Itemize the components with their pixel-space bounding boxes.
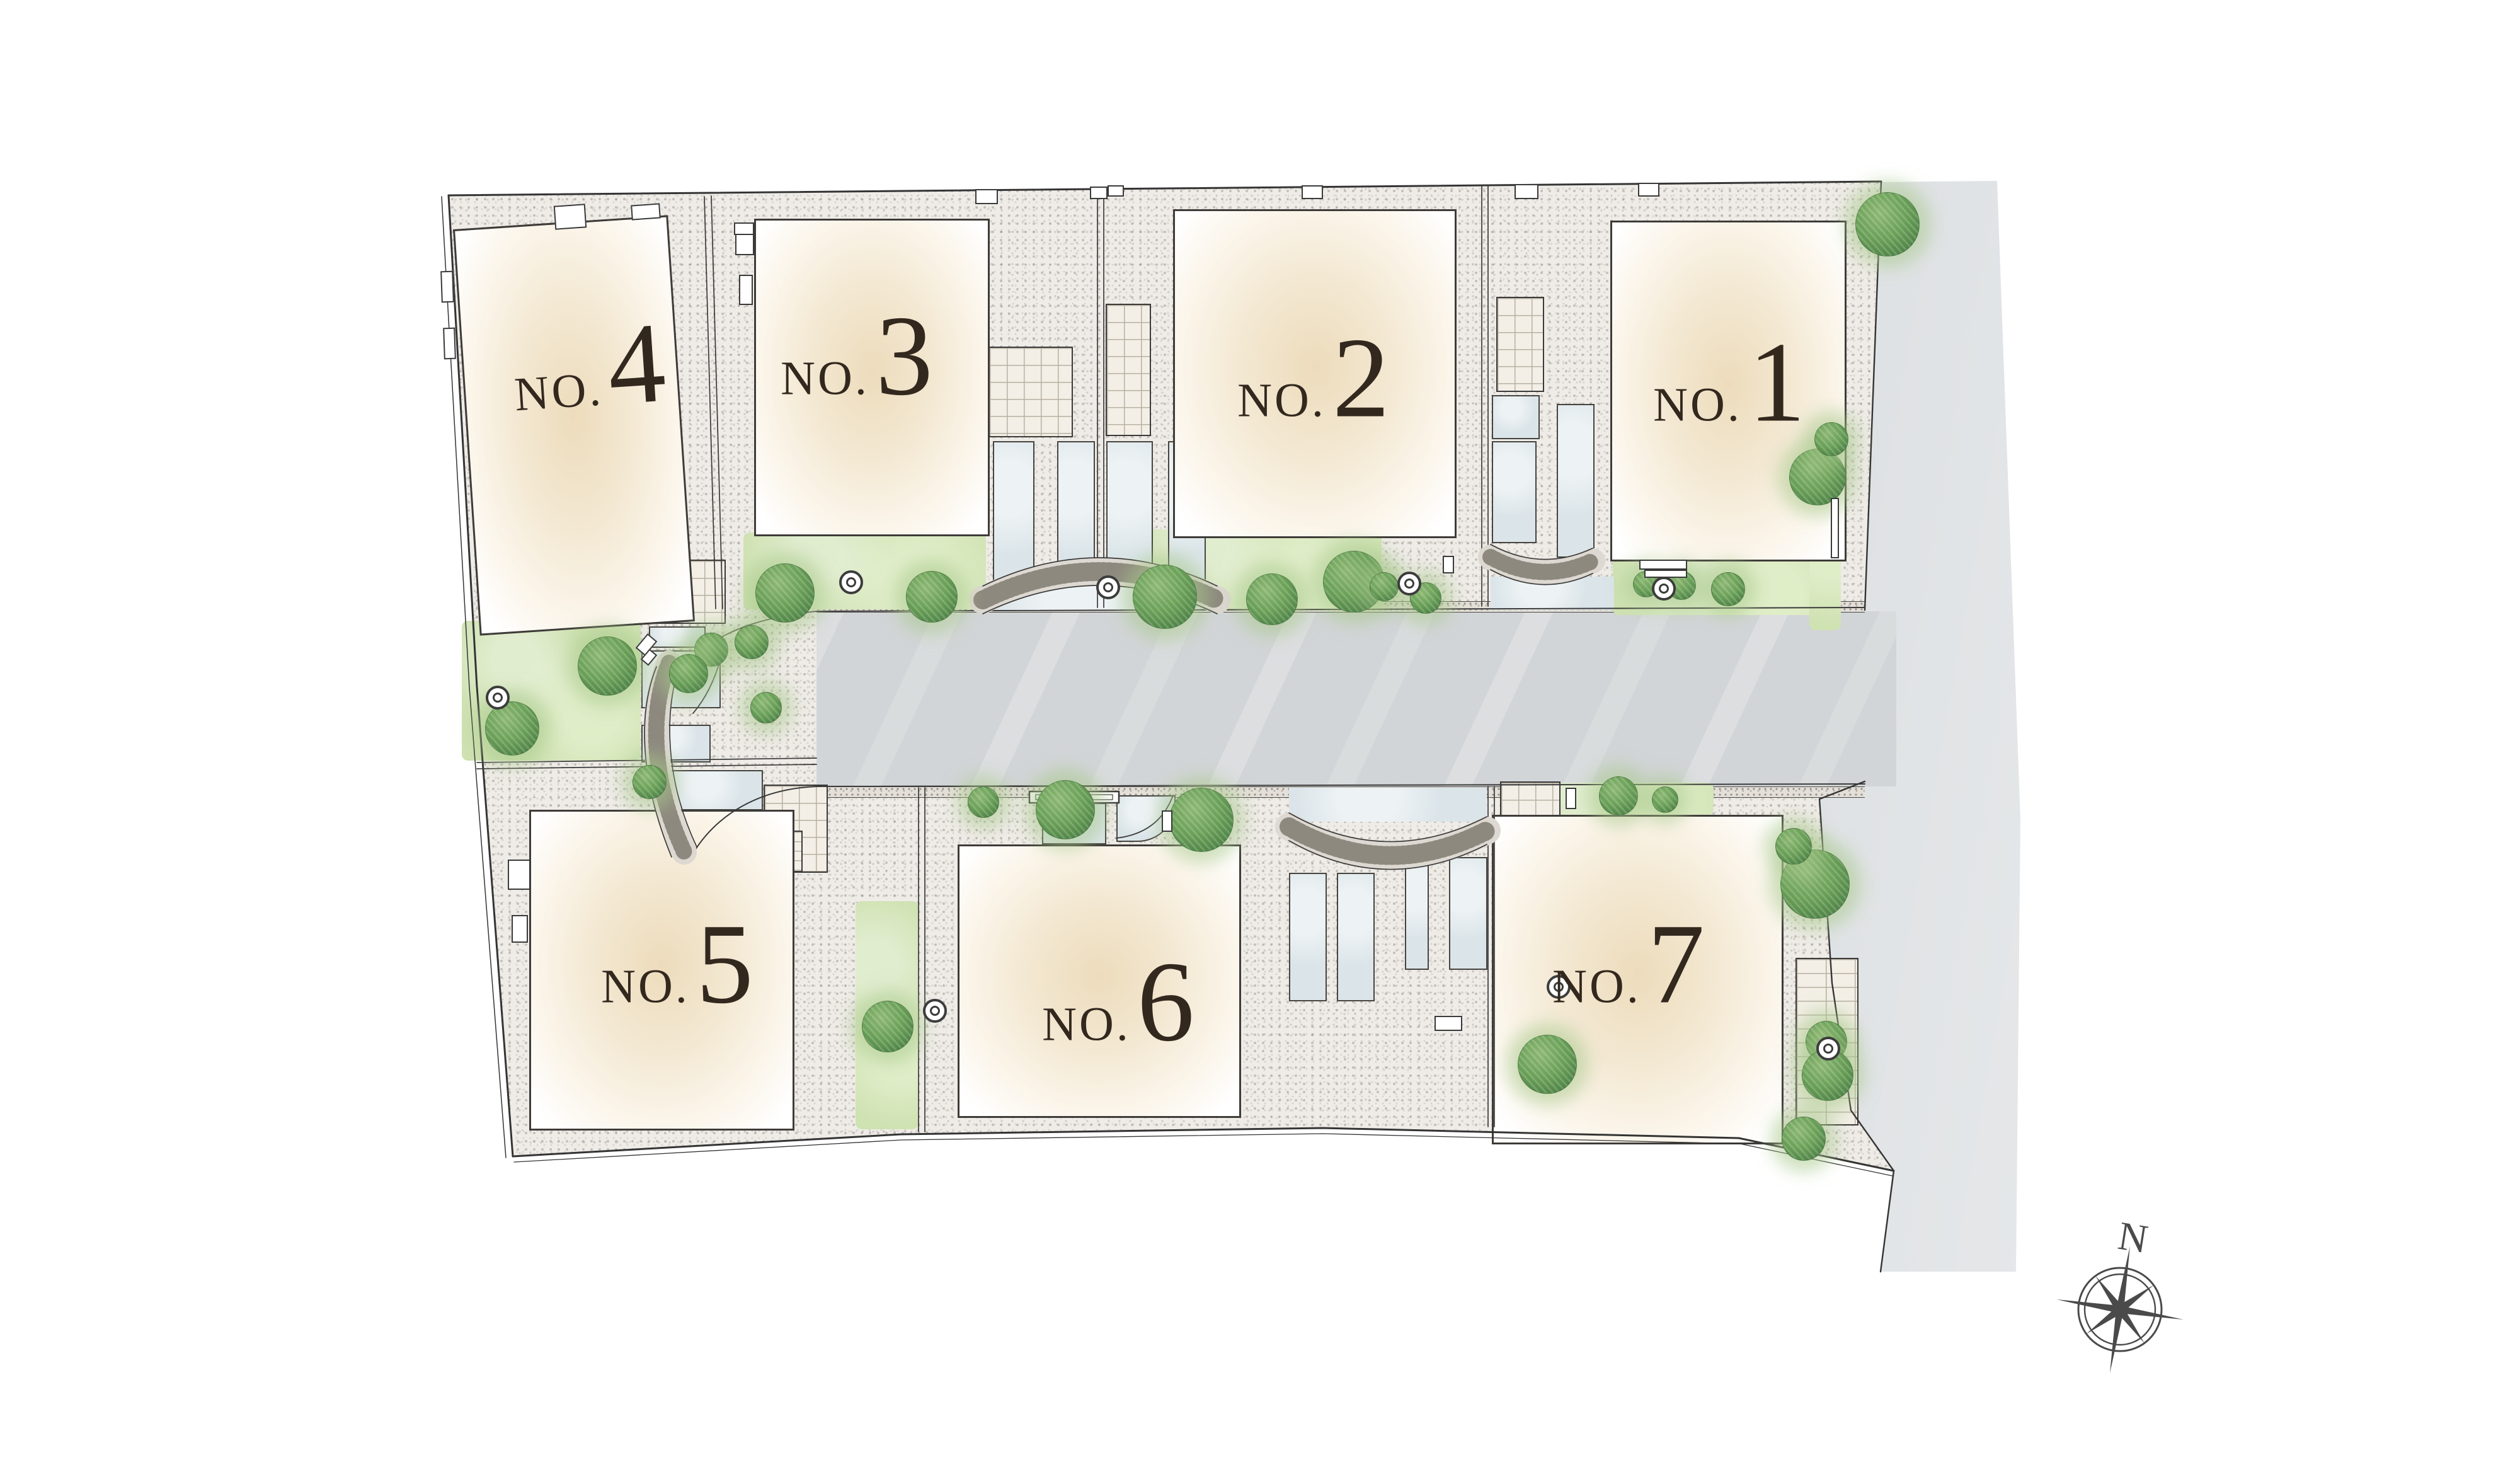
- gate-post: [1090, 187, 1108, 199]
- gate-post: [1638, 183, 1659, 197]
- tree: [750, 692, 782, 723]
- lot-6-number: 6: [1137, 945, 1194, 1059]
- tree: [1169, 788, 1234, 852]
- gate-post: [1443, 556, 1454, 573]
- gate-post: [1639, 560, 1687, 570]
- tree: [906, 571, 958, 623]
- tree: [633, 765, 667, 799]
- lot-4-prefix: NO.: [513, 362, 605, 422]
- lot-3-number: 3: [876, 299, 933, 413]
- gate-post: [554, 204, 587, 229]
- tree: [578, 636, 637, 696]
- tree: [735, 625, 769, 659]
- gate-post: [631, 203, 661, 220]
- tree: [485, 701, 539, 756]
- lot-1-number: 1: [1748, 325, 1806, 440]
- tree: [862, 1001, 913, 1052]
- lot-label-1: NO. 1: [1653, 325, 1806, 440]
- tree: [669, 654, 708, 693]
- gate-post: [1302, 185, 1323, 199]
- tree: [1246, 573, 1298, 625]
- gate-post: [440, 271, 454, 303]
- lot-2-prefix: NO.: [1237, 373, 1326, 428]
- tree: [1652, 786, 1678, 813]
- tree: [755, 563, 815, 623]
- gate-post: [1831, 498, 1839, 558]
- manhole-cover: [1397, 572, 1421, 596]
- site-furniture-layer: [0, 0, 2520, 1462]
- lot-label-7: NO. 7: [1552, 907, 1705, 1022]
- lot-label-3: NO. 3: [781, 299, 933, 413]
- tree: [1711, 572, 1745, 606]
- tree: [1370, 572, 1399, 601]
- lot-label-6: NO. 6: [1042, 945, 1194, 1059]
- gate-post: [1108, 185, 1124, 197]
- site-plan: N NO. 1 NO. 2 NO. 3 NO. 4 NO. 5 NO. 6 NO…: [0, 0, 2520, 1462]
- manhole-cover: [923, 999, 947, 1023]
- gate-post: [734, 222, 754, 235]
- lot-label-2: NO. 2: [1237, 321, 1390, 435]
- gate-post: [443, 328, 456, 360]
- tree: [1782, 1117, 1826, 1161]
- lot-5-number: 5: [696, 907, 753, 1022]
- lot-7-prefix: NO.: [1552, 959, 1641, 1014]
- gate-post: [512, 915, 528, 943]
- gate-post: [1162, 810, 1172, 832]
- gate-post: [1435, 1016, 1462, 1031]
- tree: [1518, 1035, 1577, 1094]
- tree: [1775, 828, 1812, 865]
- gate-post: [739, 275, 753, 305]
- manhole-cover: [1096, 575, 1120, 599]
- lot-5-prefix: NO.: [601, 959, 690, 1014]
- tree: [1855, 192, 1920, 256]
- lot-2-number: 2: [1332, 321, 1390, 435]
- lot-7-number: 7: [1647, 907, 1705, 1022]
- manhole-cover: [1816, 1037, 1840, 1061]
- manhole-cover: [839, 570, 863, 594]
- tree: [1599, 776, 1638, 815]
- lot-4-number: 4: [604, 306, 669, 424]
- lot-3-prefix: NO.: [781, 351, 869, 406]
- gate-post: [975, 189, 998, 204]
- gate-post: [508, 860, 530, 890]
- lot-6-prefix: NO.: [1042, 997, 1131, 1052]
- tree: [1036, 780, 1095, 839]
- tree: [1814, 422, 1848, 456]
- gate-post: [1515, 184, 1538, 199]
- tree: [1133, 565, 1197, 629]
- manhole-cover: [486, 686, 510, 710]
- lot-label-5: NO. 5: [601, 907, 753, 1022]
- gate-post: [735, 234, 754, 255]
- gate-post: [1566, 788, 1576, 809]
- tree: [968, 786, 999, 818]
- lot-label-4: NO. 4: [509, 306, 668, 430]
- lot-1-prefix: NO.: [1653, 377, 1742, 432]
- tree: [1789, 449, 1846, 505]
- manhole-cover: [1652, 577, 1676, 601]
